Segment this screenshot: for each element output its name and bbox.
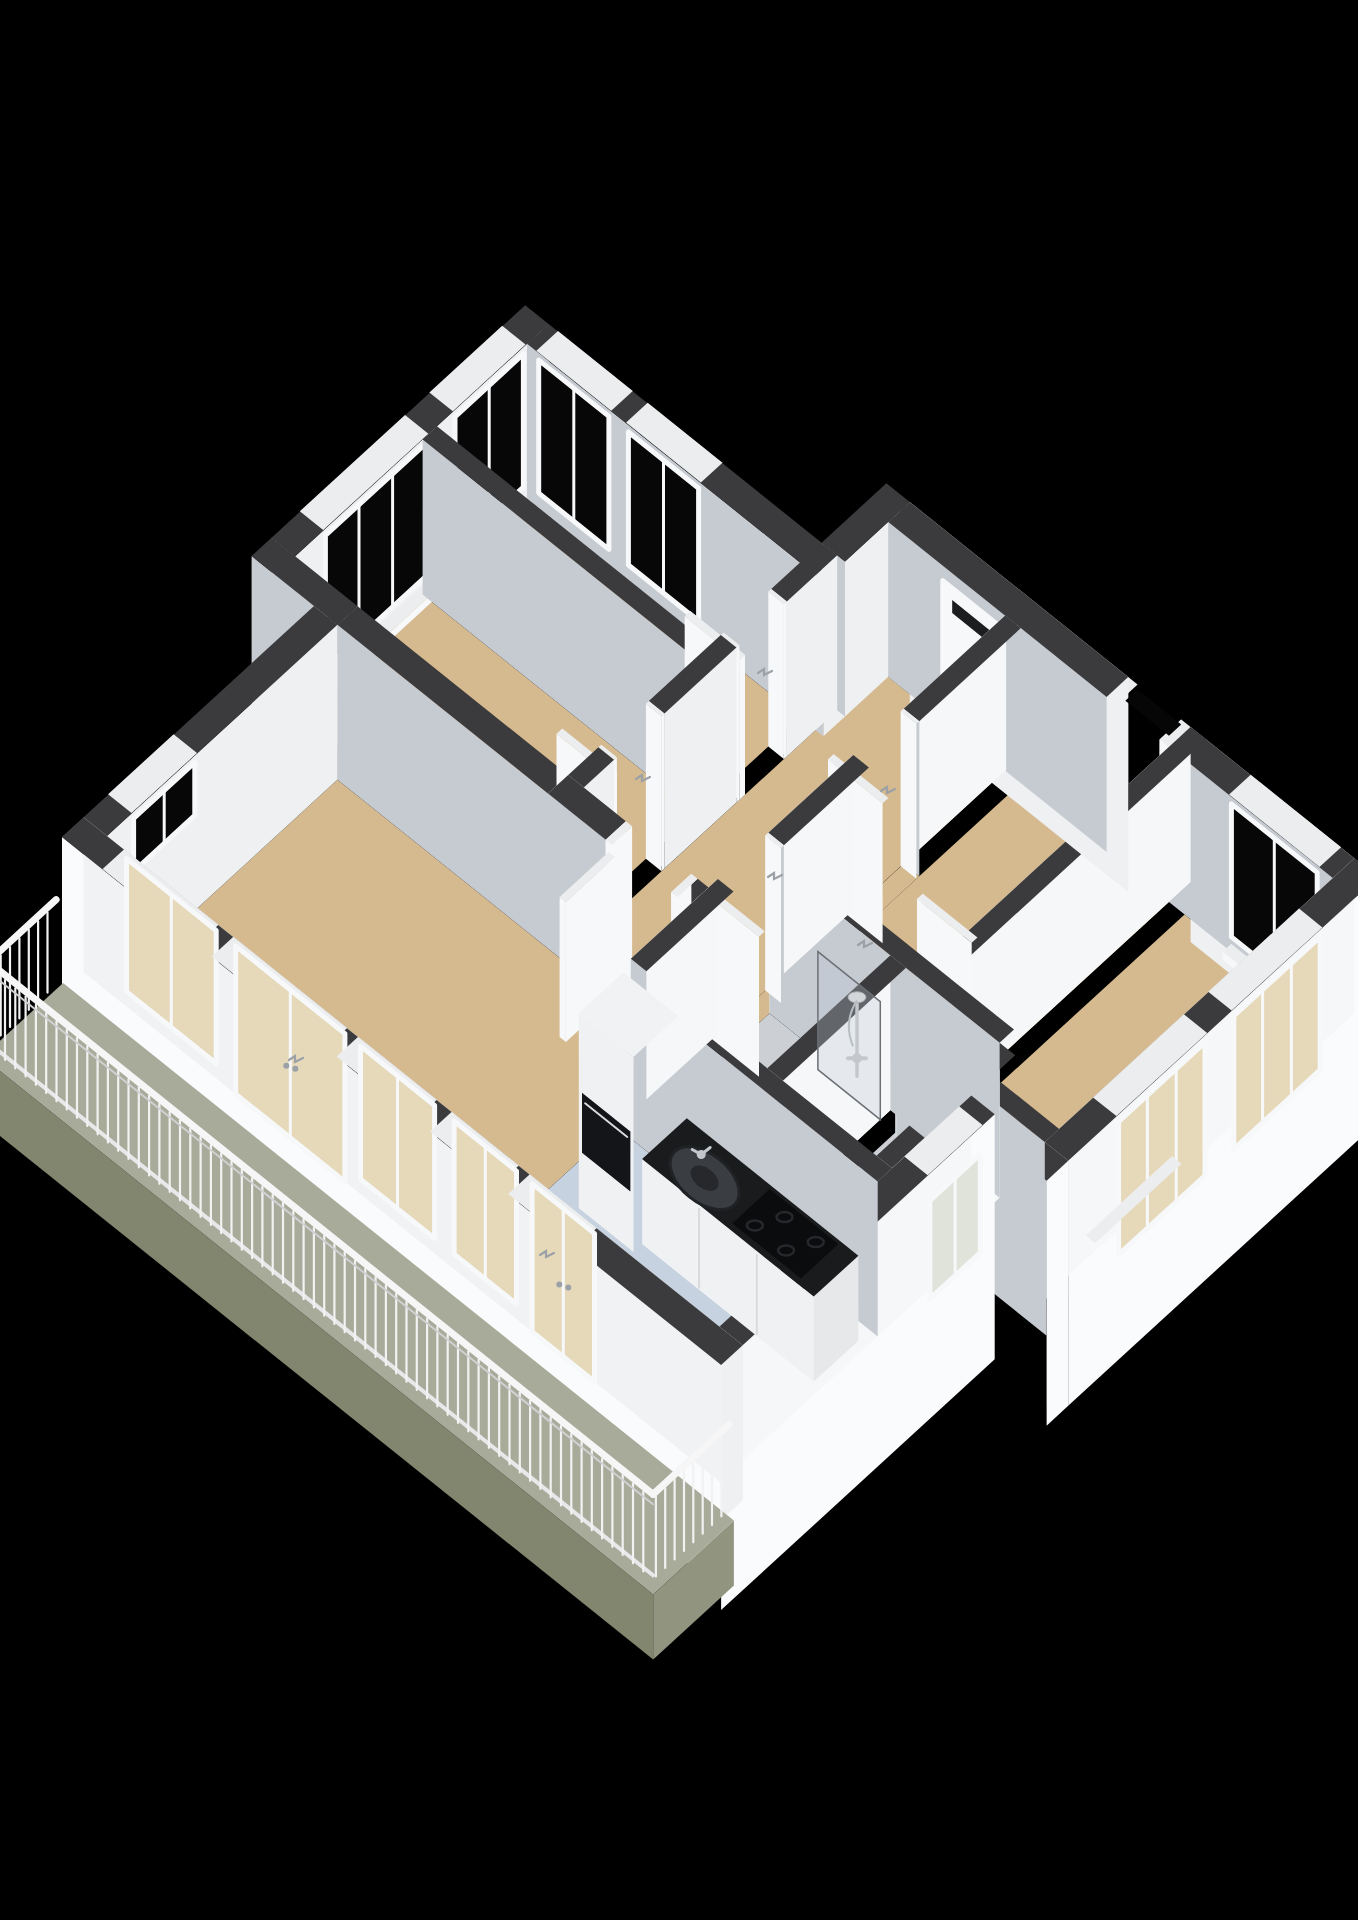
hall-jamb-2-face <box>662 714 665 872</box>
door-leaf-bedroom-top-face <box>739 655 745 800</box>
shower-mixer-knob-icon <box>852 1053 862 1063</box>
door-handle-icon <box>283 1063 289 1069</box>
hall-jamb-4-face <box>768 592 784 760</box>
hall-jamb-6-face <box>901 711 917 879</box>
se-step-wall-outer-face <box>1047 1161 1069 1426</box>
floorplan-stage <box>0 0 1358 1920</box>
door-leaf-living-face <box>560 897 566 1042</box>
hall-jamb-5-face <box>765 835 781 1003</box>
door-handle-icon <box>565 1285 571 1291</box>
floorplan-3d-render <box>0 0 1358 1920</box>
door-handle-icon <box>556 1282 562 1288</box>
hall-jamb-3-face <box>736 645 739 803</box>
door-handle-icon <box>292 1066 298 1072</box>
hall-jamb-4-face <box>784 601 787 759</box>
hall-jamb-2-face <box>646 704 662 872</box>
